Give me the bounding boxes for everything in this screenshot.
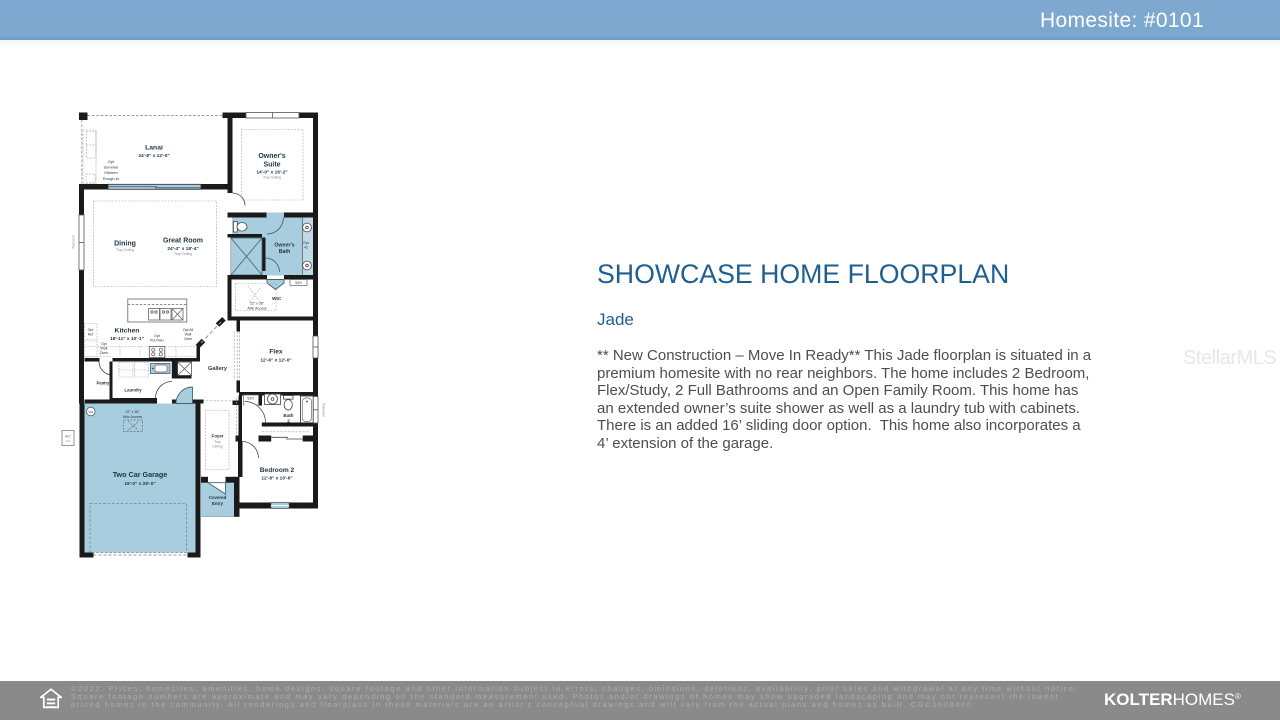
svg-text:52H: 52H (247, 397, 254, 401)
svg-text:Pad: Pad (66, 439, 71, 443)
svg-text:Flex: Flex (269, 349, 283, 356)
svg-text:Transom: Transom (322, 403, 326, 417)
svg-text:Lanai: Lanai (145, 145, 163, 152)
svg-text:22" x 36": 22" x 36" (250, 302, 265, 306)
svg-text:Suite: Suite (263, 162, 280, 169)
svg-text:22" x 36": 22" x 36" (125, 410, 140, 414)
svg-text:Rough-In: Rough-In (103, 176, 119, 181)
svg-text:Entry: Entry (212, 501, 224, 506)
svg-text:12'-8" x 10'-6": 12'-8" x 10'-6" (261, 476, 292, 482)
svg-text:Owner's: Owner's (274, 243, 294, 249)
svg-text:Kitchen: Kitchen (104, 170, 117, 175)
svg-text:Owner's: Owner's (258, 153, 285, 160)
svg-text:Attic Access: Attic Access (123, 415, 143, 419)
svg-text:Bath: Bath (279, 249, 291, 255)
svg-text:Attic Access: Attic Access (247, 307, 267, 311)
svg-text:Wall: Wall (185, 333, 192, 337)
svg-text:Bedroom 2: Bedroom 2 (260, 467, 295, 474)
svg-text:Opt: Opt (88, 328, 94, 332)
svg-text:Ref: Ref (88, 333, 93, 337)
svg-text:Opt: Opt (303, 241, 309, 245)
svg-text:Transom: Transom (72, 235, 76, 249)
svg-text:Bath: Bath (283, 413, 293, 418)
svg-text:Oven: Oven (100, 351, 108, 355)
svg-text:42: 42 (304, 245, 308, 249)
svg-text:Kitchen: Kitchen (115, 328, 140, 335)
svg-text:Great Room: Great Room (163, 238, 203, 245)
svg-text:Dining: Dining (114, 241, 136, 248)
svg-text:Opt: Opt (101, 342, 107, 346)
svg-text:Tray Ceiling: Tray Ceiling (116, 248, 134, 252)
svg-text:Gallery: Gallery (208, 366, 228, 372)
svg-text:Two Car Garage: Two Car Garage (113, 470, 168, 479)
svg-text:Summer: Summer (103, 165, 119, 170)
svg-text:Opt: Opt (108, 159, 115, 164)
svg-text:Opt All: Opt All (183, 328, 194, 332)
svg-text:WIC: WIC (272, 296, 282, 302)
svg-text:Wall: Wall (101, 347, 108, 351)
svg-text:Tray Ceiling: Tray Ceiling (174, 252, 192, 256)
svg-text:Tray Ceiling: Tray Ceiling (263, 176, 281, 180)
svg-text:Foyer: Foyer (212, 434, 224, 439)
svg-text:Covered: Covered (209, 495, 227, 500)
svg-text:52H: 52H (295, 281, 302, 285)
svg-text:Pot Filler: Pot Filler (150, 339, 165, 343)
svg-text:18'-11" x 10'-1": 18'-11" x 10'-1" (110, 336, 144, 342)
svg-text:A/C: A/C (65, 435, 71, 439)
svg-text:Pantry: Pantry (96, 381, 110, 386)
svg-text:Laundry: Laundry (124, 388, 142, 393)
svg-text:19'-0" x 25'-0": 19'-0" x 25'-0" (124, 481, 155, 487)
svg-text:Tray: Tray (214, 440, 221, 444)
svg-text:Ceiling: Ceiling (212, 445, 222, 449)
svg-text:WH: WH (88, 410, 93, 414)
svg-text:12'-6" x 12'-0": 12'-6" x 12'-0" (260, 358, 291, 364)
svg-text:Opt: Opt (154, 334, 160, 338)
svg-text:24'-8" x 12'-0": 24'-8" x 12'-0" (138, 153, 169, 159)
svg-text:Oven: Oven (184, 337, 192, 341)
